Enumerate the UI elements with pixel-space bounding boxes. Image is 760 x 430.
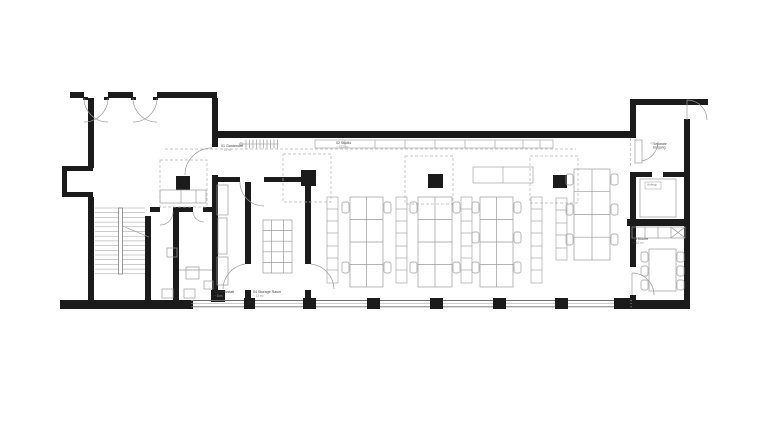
column [553,175,567,188]
room-name: 05 Küche [633,237,648,241]
storage-table [263,220,292,273]
entry-door-arc [133,98,157,122]
room-area: ~ 11 m² [221,148,243,152]
elevator [640,179,676,217]
room-name: 03 Werkstatt [214,290,234,294]
entry-door-arc [84,98,108,122]
wc-fixtures [162,248,213,298]
garderobe-door-arc [240,182,264,206]
sideboard [473,167,533,183]
shelf-strip [461,197,472,283]
entrance-label-line2: Eingang [653,146,667,150]
kitchen-table [649,249,676,291]
desk-clusters [342,169,618,287]
wc-door-arc [193,212,204,222]
floor-plan: 01 Garderobe ~ 11 m² 02 Studio ~ 152 m² … [0,0,760,430]
column [301,170,316,186]
left-wing-furniture [160,190,213,298]
room-area: ~ 8 m² [214,294,234,298]
column [428,174,443,188]
room-name: 01 Garderobe [221,144,243,148]
shelf-strip [327,197,338,283]
room-label-kueche: 05 Küche ~ 16 m² [633,237,648,245]
entrance-annotation: ◁ Separate Eingang [650,142,667,150]
room-area: ~ 16 m² [633,241,648,245]
entry-bench [160,190,206,203]
room-label-garderobe: 01 Garderobe ~ 11 m² [221,144,243,152]
desk-cluster [472,197,521,287]
storage-door-arc [311,264,334,289]
room-area: ~ 152 m² [336,145,351,149]
window-band [191,298,632,309]
room-name: 02 Studio [336,141,351,145]
desk-cluster [566,169,618,260]
room-label-studio: 02 Studio ~ 152 m² [336,141,351,149]
coat-rail [240,140,279,149]
column [176,176,190,190]
shelving [327,167,567,283]
shelf-strip [556,198,567,260]
storage-rooms-furniture [217,185,292,285]
exterior-walls [60,92,708,309]
room-label-werkstatt: 03 Werkstatt ~ 8 m² [214,290,234,298]
desk-cluster [410,197,460,287]
desk-cluster [342,197,391,287]
werkstatt-cabinets [217,185,228,285]
room-area: ~ 13 m² [253,294,281,298]
elevator-label: Aufzug [647,183,656,186]
wc-door-arc [160,212,173,225]
entrance-arrow-icon: ◁ [650,142,652,145]
stairs [95,208,149,274]
entrance-door-leaf [635,140,642,163]
shelf-strip [396,197,407,283]
entry-door-arc [133,98,157,122]
floor-plan-drawing [0,0,760,430]
entry-door-arc [84,98,108,122]
hall-door-arc [185,148,212,175]
shelf-strip [531,197,542,283]
room-label-storage: 04 Storage Raum ~ 13 m² [253,290,281,298]
room-name: 04 Storage Raum [253,290,281,294]
